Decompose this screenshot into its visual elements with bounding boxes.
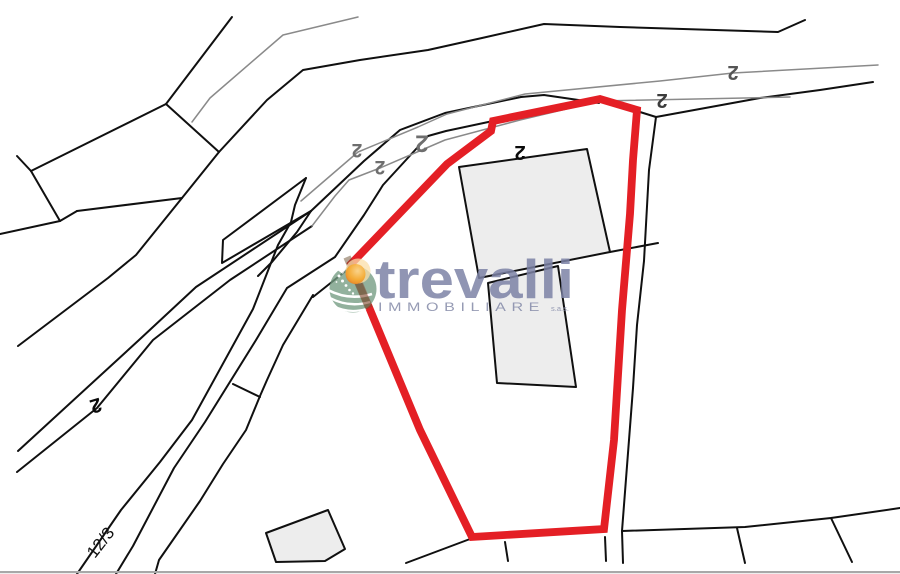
svg-text:trevalli: trevalli (375, 248, 574, 310)
svg-text:2: 2 (727, 61, 738, 83)
svg-text:2: 2 (415, 129, 428, 156)
svg-text:IMMOBILIARE: IMMOBILIARE (378, 302, 545, 314)
svg-text:2: 2 (375, 156, 386, 177)
svg-text:2: 2 (656, 89, 667, 111)
svg-text:2: 2 (514, 141, 525, 163)
svg-text:s.a.s.: s.a.s. (551, 304, 569, 313)
svg-text:2: 2 (352, 139, 363, 160)
